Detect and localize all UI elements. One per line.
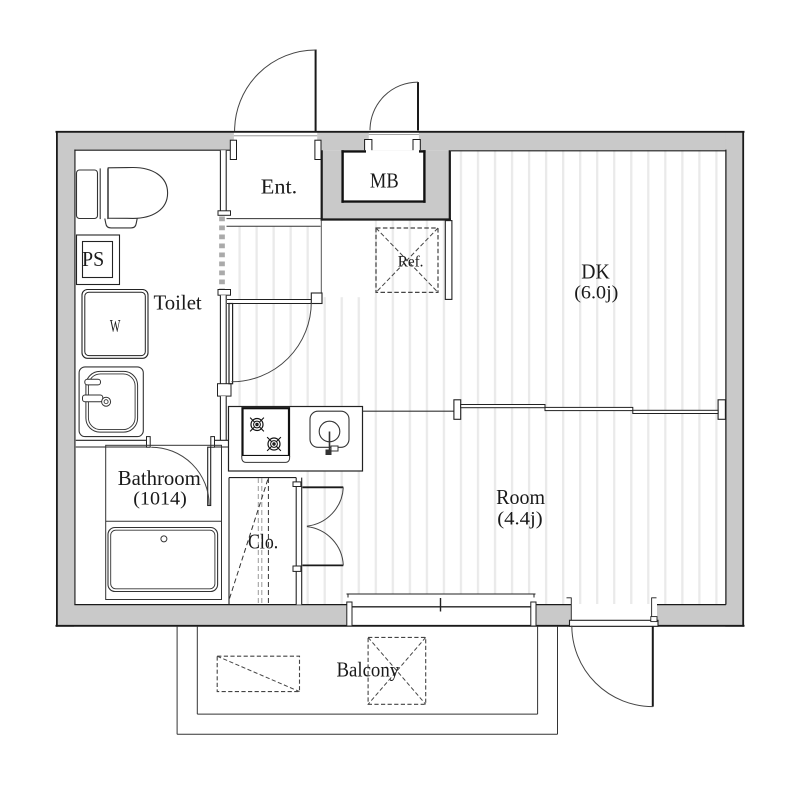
svg-text:(6.0j): (6.0j) <box>574 283 618 303</box>
svg-text:Toilet: Toilet <box>153 291 201 314</box>
svg-text:Room: Room <box>496 487 545 510</box>
svg-text:(4.4j): (4.4j) <box>497 508 542 529</box>
svg-text:DK: DK <box>581 261 610 284</box>
svg-text:Clo.: Clo. <box>248 531 278 554</box>
svg-text:PS: PS <box>82 249 104 272</box>
svg-text:W: W <box>110 318 121 337</box>
svg-text:Ref.: Ref. <box>398 253 424 270</box>
svg-text:Balcony: Balcony <box>336 658 399 681</box>
svg-text:MB: MB <box>370 169 399 193</box>
svg-text:(1014): (1014) <box>133 489 187 509</box>
svg-text:Ent.: Ent. <box>261 175 297 198</box>
svg-text:Bathroom: Bathroom <box>118 466 201 490</box>
